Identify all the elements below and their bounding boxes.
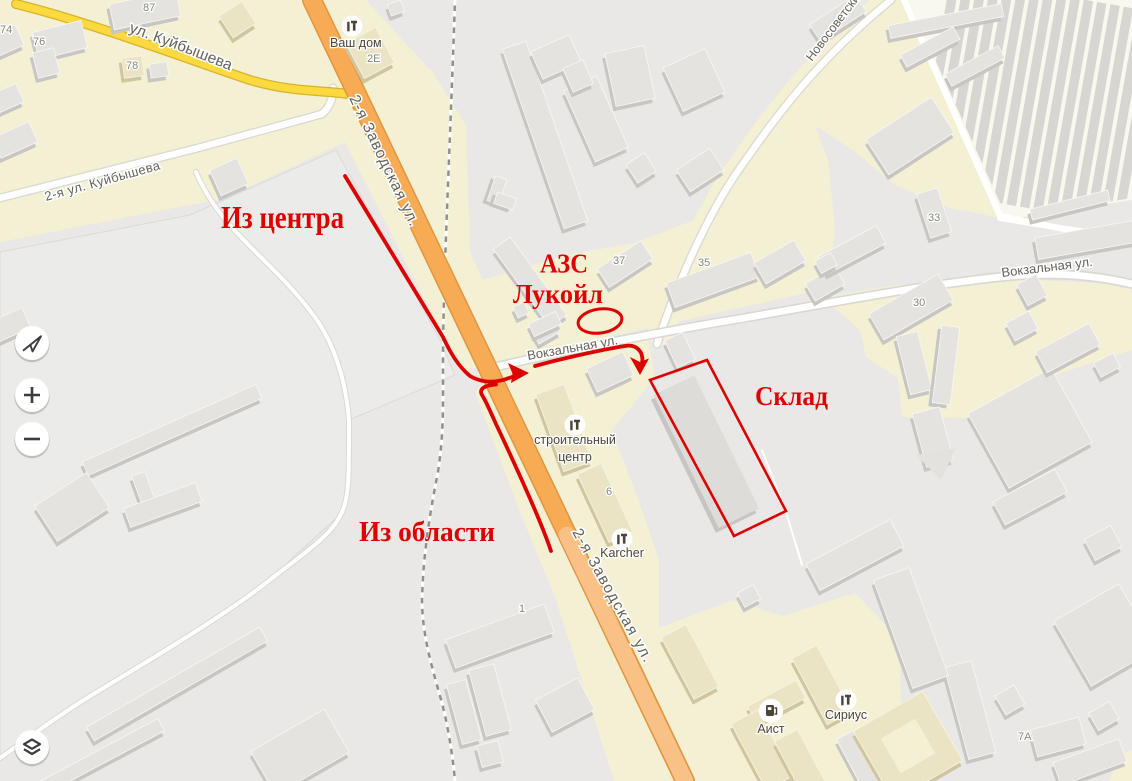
svg-text:2E: 2E — [367, 53, 380, 65]
svg-text:Склад: Склад — [755, 380, 828, 411]
svg-text:1: 1 — [519, 603, 525, 615]
svg-text:Из центра: Из центра — [221, 199, 344, 235]
svg-text:78: 78 — [126, 60, 138, 72]
svg-text:АЗС: АЗС — [540, 248, 588, 279]
svg-text:Ваш дом: Ваш дом — [330, 36, 382, 50]
svg-text:35: 35 — [698, 257, 710, 269]
svg-text:Аист: Аист — [757, 722, 785, 736]
svg-text:74: 74 — [0, 24, 12, 36]
svg-text:87: 87 — [143, 2, 155, 14]
svg-text:строительный: строительный — [534, 433, 616, 447]
svg-text:76: 76 — [33, 36, 45, 48]
svg-text:37: 37 — [613, 255, 625, 267]
svg-text:7A: 7A — [1018, 731, 1032, 743]
svg-text:центр: центр — [558, 450, 592, 464]
svg-text:6: 6 — [606, 486, 612, 498]
svg-text:Karcher: Karcher — [600, 546, 644, 560]
svg-text:Из области: Из области — [359, 517, 495, 548]
svg-text:Сириус: Сириус — [825, 708, 867, 722]
svg-text:33: 33 — [928, 212, 940, 224]
svg-text:30: 30 — [913, 297, 925, 309]
svg-text:Лукойл: Лукойл — [513, 278, 603, 309]
